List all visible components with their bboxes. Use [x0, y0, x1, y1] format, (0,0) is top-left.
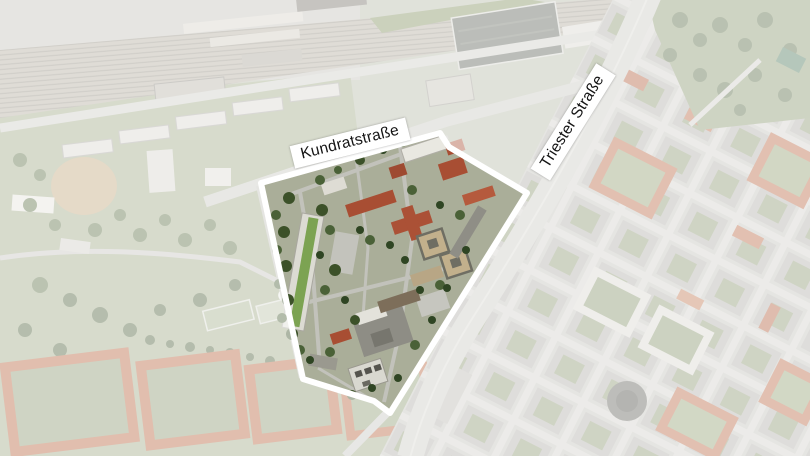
satellite-map-canvas: [0, 0, 810, 456]
aerial-map-figure: Kundratstraße Triester Straße: [0, 0, 810, 456]
